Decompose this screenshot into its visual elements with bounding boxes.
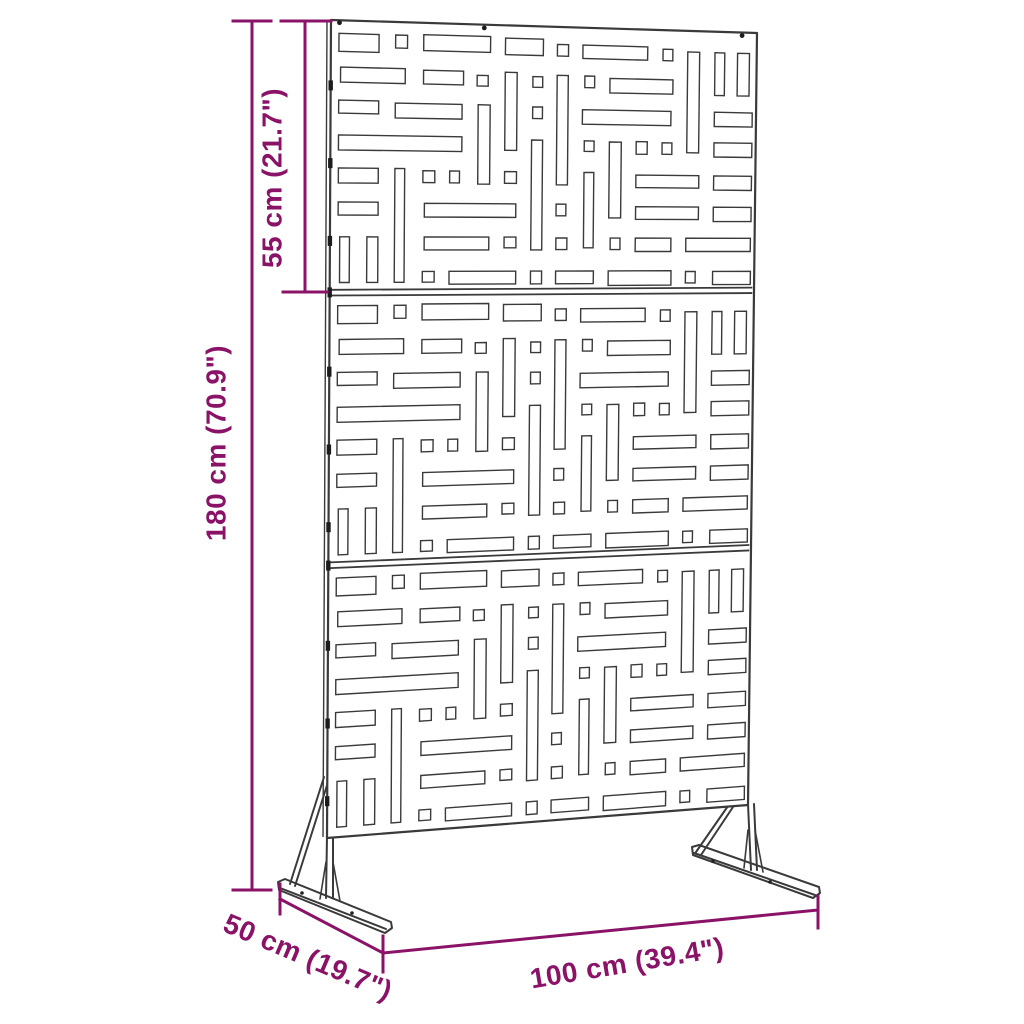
dim-label-width: 100 cm (39.4") [528, 932, 727, 995]
diagram-svg: 180 cm (70.9") 55 cm (21.7") 50 cm (19.7… [0, 0, 1024, 1024]
product-dimension-diagram: 180 cm (70.9") 55 cm (21.7") 50 cm (19.7… [0, 0, 1024, 1024]
dim-label-panel-height: 55 cm (21.7") [257, 88, 288, 268]
dim-label-total-height: 180 cm (70.9") [201, 345, 232, 541]
privacy-screen-drawing [278, 20, 820, 933]
